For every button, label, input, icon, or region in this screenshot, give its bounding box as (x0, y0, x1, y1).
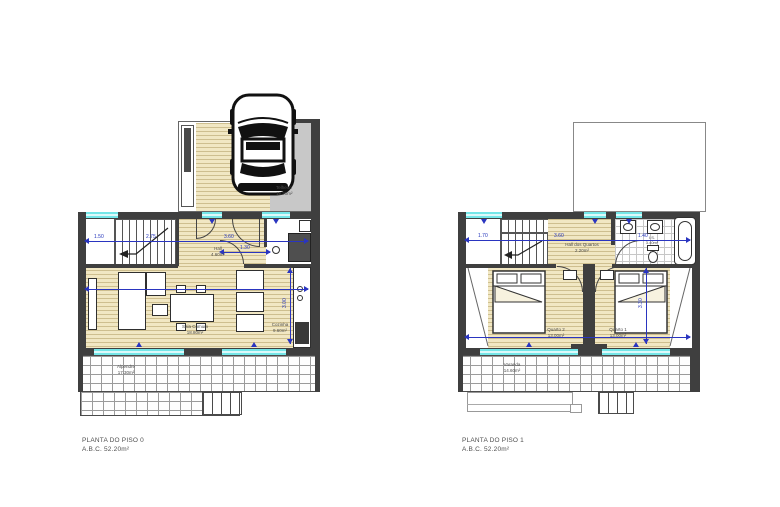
exterior-steps (598, 392, 634, 414)
dimension-label: 3.30 (639, 298, 644, 308)
deck-below-outline (467, 392, 573, 412)
dimension-label: 3.60 (554, 234, 564, 239)
nightstand (563, 270, 577, 280)
window-strip (584, 212, 606, 218)
slope-line (466, 266, 490, 348)
opening-marker (526, 342, 532, 347)
wall-segment (466, 264, 556, 268)
window-strip (466, 212, 502, 218)
washbasin-bowl (650, 223, 660, 231)
dim-arrow (643, 268, 649, 273)
room-label-varanda: Varanda 14.60m² (492, 362, 532, 373)
window-strip (616, 212, 642, 218)
opening-marker (626, 219, 632, 224)
room-area: 2.20m² (556, 248, 608, 254)
dimension-line (466, 337, 690, 338)
dimension-label: 1.70 (478, 234, 488, 239)
deck-pier (690, 352, 700, 392)
opening-marker (481, 219, 487, 224)
dim-arrow (686, 237, 691, 243)
dimension-line (646, 268, 647, 344)
plan-title-piso-1: PLANTA DO PISO 1 (462, 437, 524, 445)
roof-outline (573, 122, 706, 212)
partition-wall (583, 264, 595, 348)
deck-below-post (570, 404, 582, 413)
nightstand (600, 270, 614, 280)
room-label-quarto-1: Quarto 1 13.00m² (600, 327, 636, 338)
washbasin-bowl (623, 223, 633, 231)
dim-arrow (464, 237, 469, 243)
dim-arrow (643, 339, 649, 344)
plan-abc-piso-1: A.B.C. 52.20m² (462, 446, 509, 454)
opening-marker (633, 342, 639, 347)
toilet-bowl (648, 251, 658, 263)
room-area: 14.60m² (492, 368, 532, 374)
dim-arrow (686, 334, 691, 340)
stair-landing (466, 219, 500, 266)
room-label-is: I.S. 3.40m² (638, 236, 666, 245)
opening-marker (592, 219, 598, 224)
dim-arrow (464, 334, 469, 340)
room-area: 3.40m² (638, 241, 666, 246)
floor-plan-piso-1: 1.70 3.60 1.40 3.30 Hall dos Quartos 2.2… (0, 0, 780, 507)
room-area: 13.00m² (600, 333, 636, 339)
bed-icon (492, 270, 546, 334)
floorplan-sheet: Telheiro 18.20m² (0, 0, 780, 507)
room-label-quarto-2: Quarto 2 13.00m² (538, 327, 574, 338)
deck-below-line (467, 404, 573, 405)
room-label-hall-dos-quartos: Hall dos Quartos 2.20m² (556, 242, 608, 253)
deck-pier (458, 352, 463, 392)
room-area: 13.00m² (538, 333, 574, 339)
wall-segment (611, 219, 615, 245)
wall-segment (612, 264, 692, 268)
balcony-varanda (458, 355, 700, 392)
